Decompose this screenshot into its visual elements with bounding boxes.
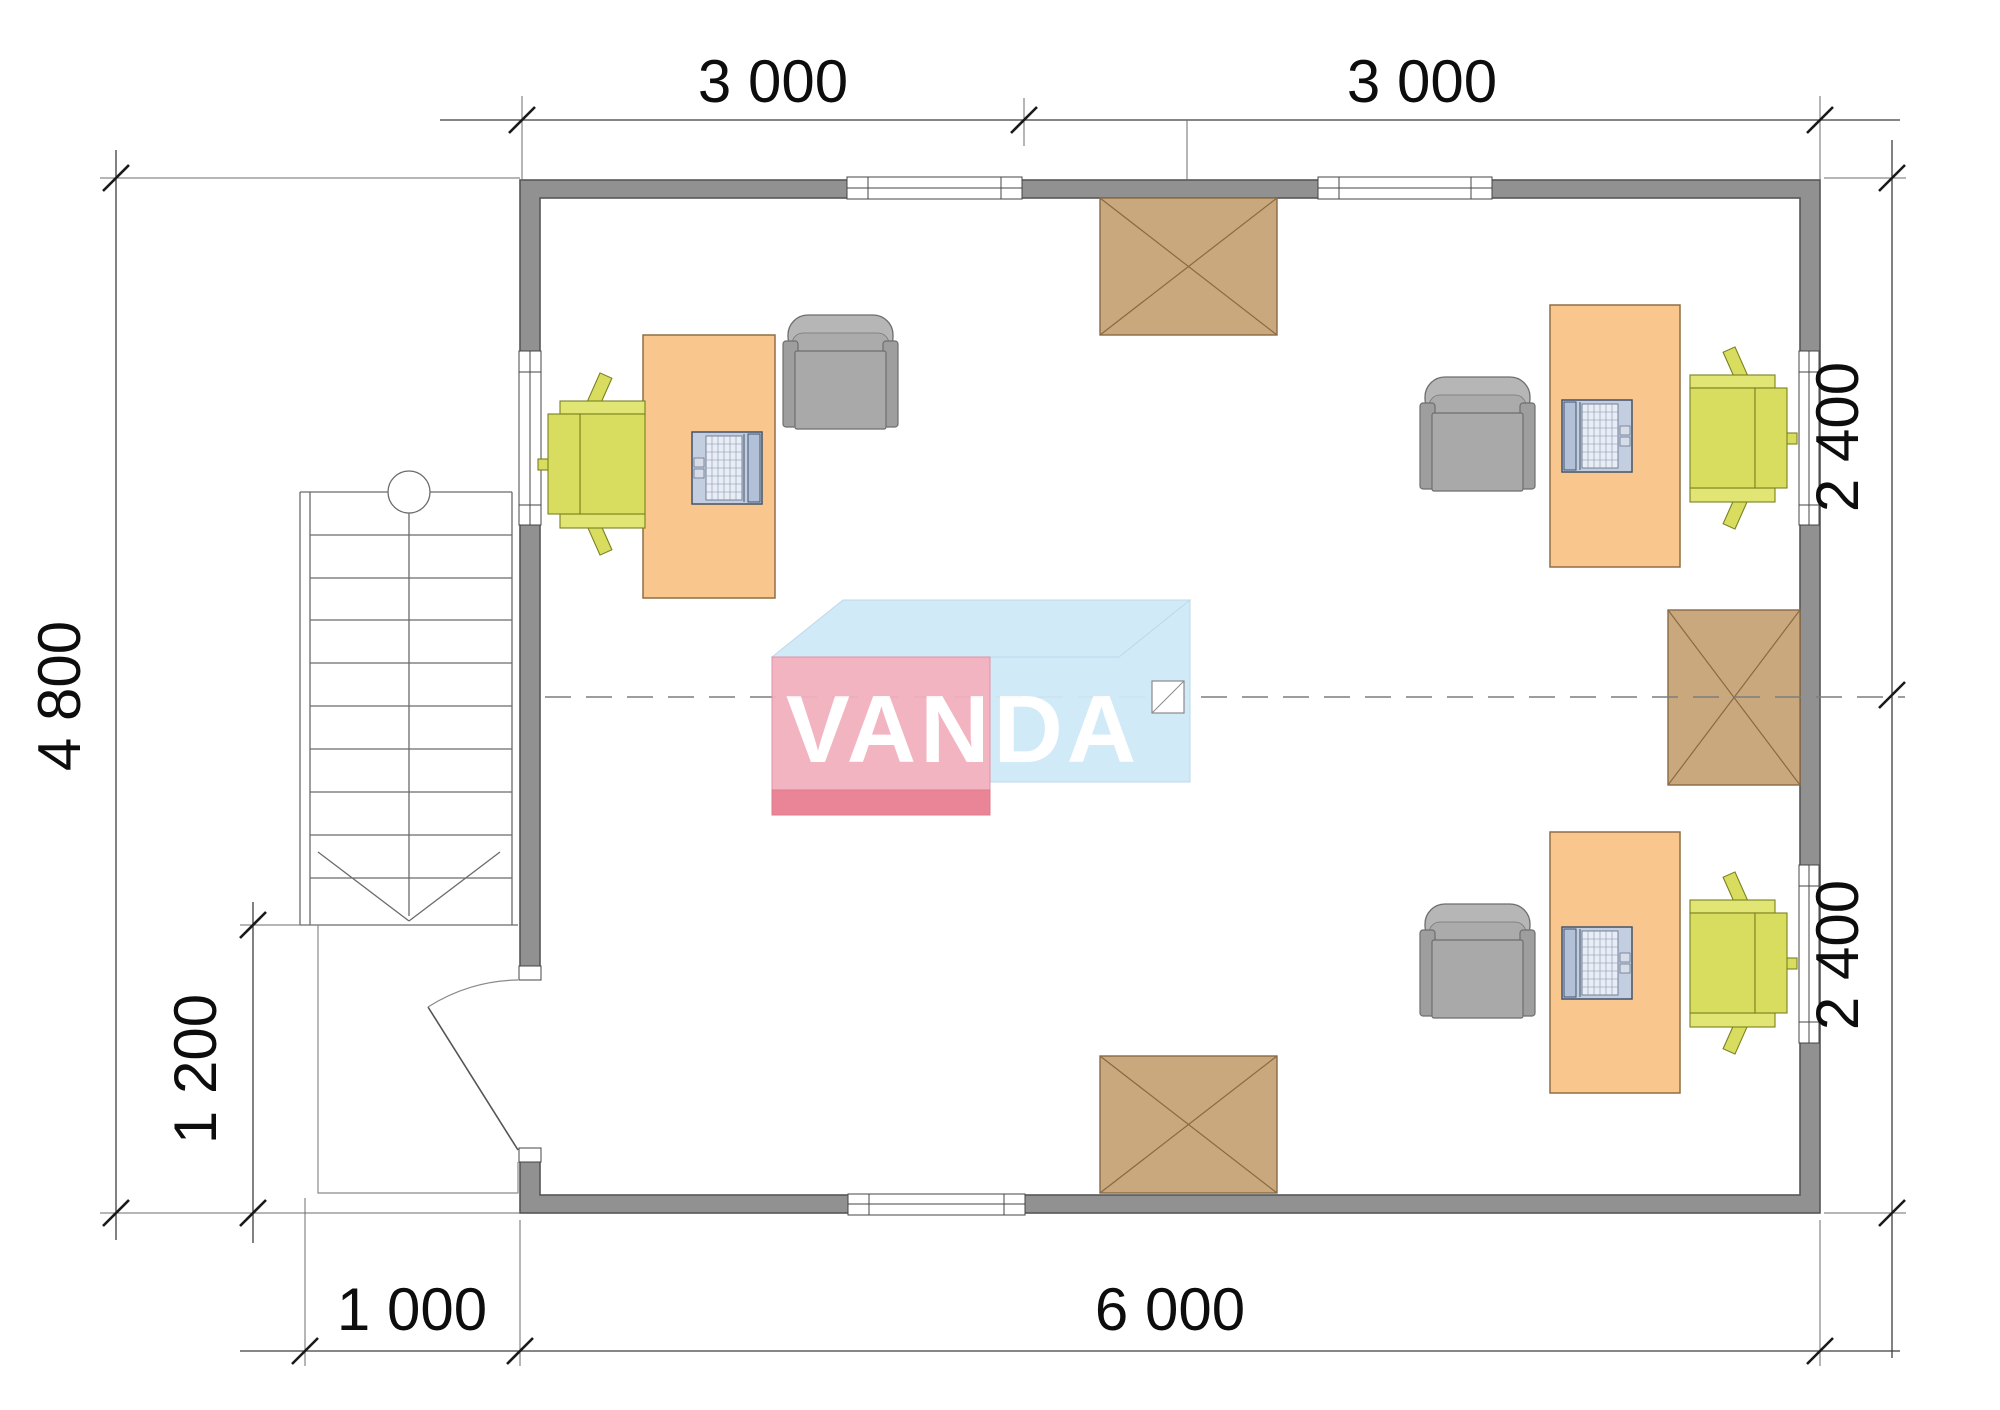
vanda-logo: VANDA [772,600,1190,815]
armchair-3 [1420,904,1535,1018]
dim-right-lower-label: 2 400 [1804,880,1871,1030]
logo-red-strip [772,790,990,815]
workstation-1 [538,315,898,598]
dim-bottom-total-label: 6 000 [1095,1276,1245,1343]
door-leaf [428,1007,518,1150]
porch-outline [318,925,518,1193]
workstation-3 [1420,832,1797,1093]
stair-newel-circle [388,471,430,513]
dim-top-right-label: 3 000 [1347,48,1497,115]
floor-plan-canvas: VANDA 3 000 3 000 2 400 2 400 4 800 [0,0,2000,1410]
dimension-top: 3 000 3 000 [440,48,1900,180]
stair-treads [310,535,512,878]
window-top-right [1318,177,1492,199]
dim-porch-width-label: 1 000 [337,1276,487,1343]
task-chair-1 [538,373,645,555]
laptop-1 [692,432,762,504]
roof-hatch-bottom [1100,1056,1277,1193]
dimension-bottom: 1 000 6 000 [240,1198,1900,1366]
window-top-left [847,177,1022,199]
center-marker [1152,681,1184,713]
floor-plan-drawing: VANDA 3 000 3 000 2 400 2 400 4 800 [0,0,2000,1410]
entry-door [428,966,542,1162]
logo-top-face [772,600,1190,657]
dim-porch-height-label: 1 200 [162,994,229,1144]
laptop-2 [1562,400,1632,472]
door-jamb-bottom [519,1148,541,1162]
dimension-left: 4 800 [26,150,520,1240]
dim-left-total-label: 4 800 [26,621,93,771]
armchair-2 [1420,377,1535,491]
dimension-porch-height: 1 200 [162,902,318,1243]
task-chair-3 [1690,872,1797,1054]
window-left [519,351,541,525]
dim-right-upper-label: 2 400 [1804,362,1871,512]
task-chair-2 [1690,347,1797,529]
dim-top-left-label: 3 000 [698,48,848,115]
armchair-1 [783,315,898,429]
staircase [300,471,518,925]
roof-hatch-top [1100,198,1277,335]
laptop-3 [1562,927,1632,999]
window-bottom [848,1194,1025,1215]
door-jamb-top [519,966,541,980]
door-opening [518,966,542,1162]
logo-text: VANDA [786,676,1140,783]
workstation-2 [1420,305,1797,567]
door-swing-arc [428,980,518,1007]
